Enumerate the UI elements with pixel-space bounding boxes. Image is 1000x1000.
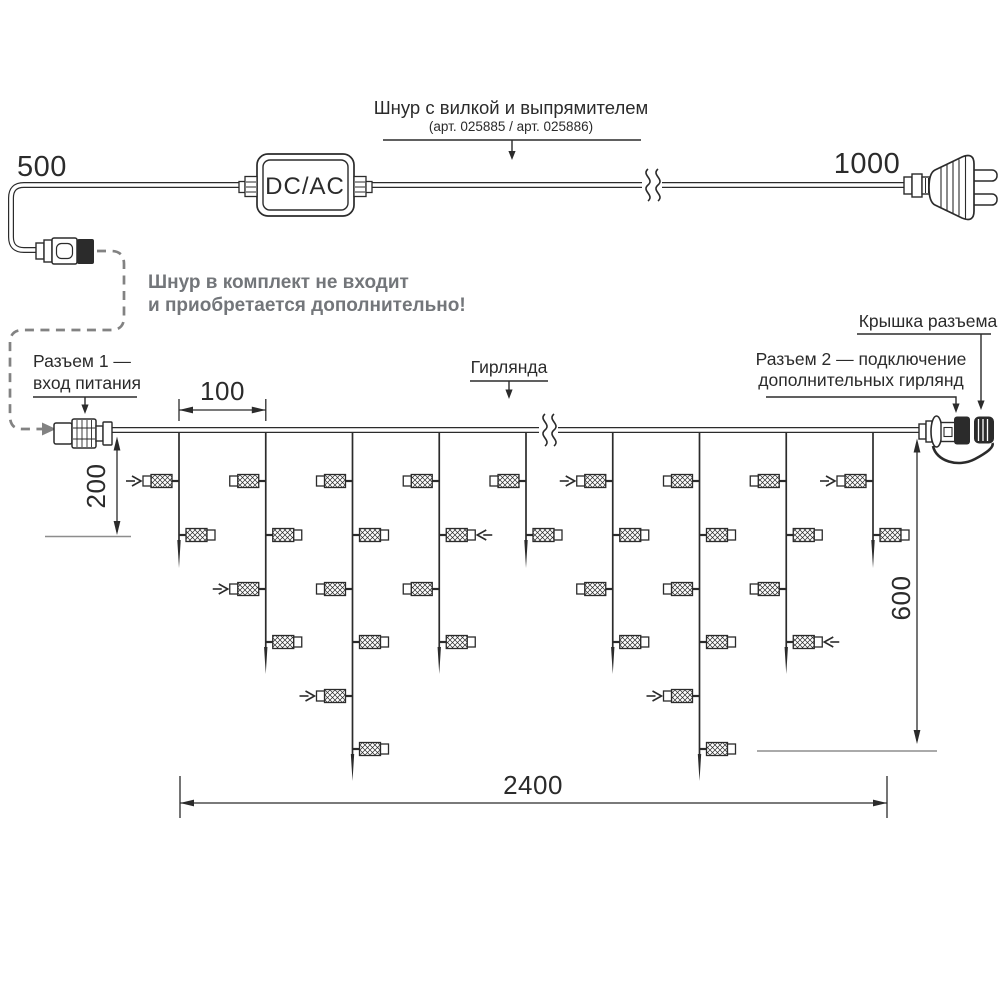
led-bulb-icon	[353, 636, 389, 649]
converter-label: DC/AC	[265, 173, 345, 200]
led-bulb-icon	[750, 583, 786, 596]
leader-arrow-icon	[952, 404, 959, 414]
dim-200: 200	[45, 437, 131, 537]
led-bulb-icon	[786, 636, 822, 649]
leader-arrow-icon	[81, 405, 88, 415]
led-bulb-icon	[179, 529, 215, 542]
mains-plug-icon	[904, 156, 997, 220]
led-bulb-icon	[403, 475, 439, 488]
led-bulb-icon	[439, 636, 475, 649]
flash-arrow-icon	[477, 530, 492, 540]
garland-drop-8	[750, 433, 839, 674]
garland-drop-5	[490, 433, 562, 568]
flash-arrow-icon	[560, 476, 575, 486]
dim-500-label: 500	[17, 151, 67, 183]
dim-2400-value: 2400	[503, 770, 563, 800]
wire-break-icon	[543, 414, 547, 446]
led-bulb-icon	[700, 743, 736, 756]
drop-tip	[698, 754, 701, 781]
cord-connector-cap	[77, 239, 94, 264]
input-connector	[54, 419, 112, 448]
garland-section: Разъем 1 — вход питания Гирлянда Разъем …	[33, 311, 998, 818]
converter-right-jack	[354, 177, 372, 197]
led-bulb-icon	[143, 475, 179, 488]
connector1-label-line1: Разъем 1 —	[33, 351, 131, 371]
led-bulb-icon	[664, 690, 700, 703]
led-bulb-icon	[230, 475, 266, 488]
led-bulb-icon	[439, 529, 475, 542]
led-bulb-icon	[490, 475, 526, 488]
dim-600-value: 600	[886, 576, 916, 621]
connector1-label-line2: вход питания	[33, 373, 141, 393]
led-bulb-icon	[230, 583, 266, 596]
led-bulb-icon	[266, 636, 302, 649]
cord-title-line1: Шнур с вилкой и выпрямителем	[374, 97, 649, 118]
cable-break-icon	[646, 169, 660, 201]
converter-left-jack	[239, 177, 257, 197]
cord-title-line2: (арт. 025885 / арт. 025886)	[429, 119, 593, 134]
flash-arrow-icon	[213, 584, 228, 594]
garland-drop-7	[647, 433, 736, 781]
dim-100-value: 100	[200, 376, 245, 406]
garland-drop-3	[300, 433, 389, 781]
connector2-label: Разъем 2 — подключение дополнительных ги…	[756, 349, 967, 413]
drop-tip	[438, 647, 441, 674]
led-bulb-icon	[577, 583, 613, 596]
led-bulb-icon	[317, 690, 353, 703]
garland-wire	[112, 414, 919, 446]
flash-arrow-icon	[824, 637, 839, 647]
connector2-label-line2: дополнительных гирлянд	[758, 370, 963, 390]
drop-tip	[524, 540, 527, 568]
led-bulb-icon	[317, 475, 353, 488]
led-bulb-icon	[786, 529, 822, 542]
end-connector-assembly	[919, 416, 994, 463]
drop-tip	[611, 647, 614, 674]
led-bulb-icon	[317, 583, 353, 596]
leader-arrow-icon	[977, 401, 984, 411]
cap-leash	[933, 443, 993, 463]
leader-arrow-icon	[505, 390, 512, 400]
cord-title: Шнур с вилкой и выпрямителем (арт. 02588…	[374, 97, 649, 160]
dim-2400: 2400	[180, 770, 887, 818]
led-bulb-icon	[353, 743, 389, 756]
led-bulb-icon	[750, 475, 786, 488]
flash-arrow-icon	[647, 691, 662, 701]
diagram-canvas: DC/AC	[0, 0, 1000, 1000]
led-bulb-icon	[700, 636, 736, 649]
leader-arrow-icon	[508, 151, 515, 160]
led-bulb-icon	[613, 529, 649, 542]
garland-label: Гирлянда	[470, 357, 548, 399]
garland-diagram-svg: DC/AC	[0, 0, 1000, 1000]
garland-drops	[126, 433, 909, 781]
led-bulb-icon	[353, 529, 389, 542]
led-bulb-icon	[526, 529, 562, 542]
dashed-connection-path	[10, 251, 124, 436]
drop-tip	[264, 647, 267, 674]
drop-tip	[177, 540, 180, 568]
led-bulb-icon	[664, 583, 700, 596]
connector-cap	[974, 417, 994, 444]
flash-arrow-icon	[126, 476, 141, 486]
led-bulb-icon	[837, 475, 873, 488]
cord-cables	[11, 185, 904, 250]
drop-tip	[871, 540, 874, 568]
cord-note: Шнур в комплект не входит и приобретаетс…	[148, 272, 466, 316]
dim-1000-label: 1000	[834, 148, 901, 180]
garland-drop-4	[403, 433, 492, 674]
led-bulb-icon	[403, 583, 439, 596]
led-bulb-icon	[664, 475, 700, 488]
cord-note-line2: и приобретается дополнительно!	[148, 295, 466, 316]
garland-drop-2	[213, 433, 302, 674]
led-bulb-icon	[577, 475, 613, 488]
dim-200-value: 200	[81, 464, 111, 509]
cord-note-line1: Шнур в комплект не входит	[148, 272, 409, 293]
led-bulb-icon	[700, 529, 736, 542]
garland-drop-6	[560, 433, 649, 674]
garland-label-text: Гирлянда	[471, 357, 548, 377]
led-bulb-icon	[873, 529, 909, 542]
drop-tip	[351, 754, 354, 781]
converter-box: DC/AC	[239, 154, 372, 216]
garland-drop-1	[126, 433, 215, 568]
cord-connector	[36, 238, 94, 264]
led-bulb-icon	[613, 636, 649, 649]
cap-label-text: Крышка разъема	[859, 311, 998, 331]
connector1-label: Разъем 1 — вход питания	[33, 351, 141, 414]
led-bulb-icon	[266, 529, 302, 542]
flash-arrow-icon	[820, 476, 835, 486]
dim-100: 100	[179, 376, 266, 421]
garland-drop-9	[820, 433, 909, 568]
connector2-plug	[954, 417, 970, 445]
connector2-label-line1: Разъем 2 — подключение	[756, 349, 967, 369]
flash-arrow-icon	[300, 691, 315, 701]
drop-tip	[785, 647, 788, 674]
